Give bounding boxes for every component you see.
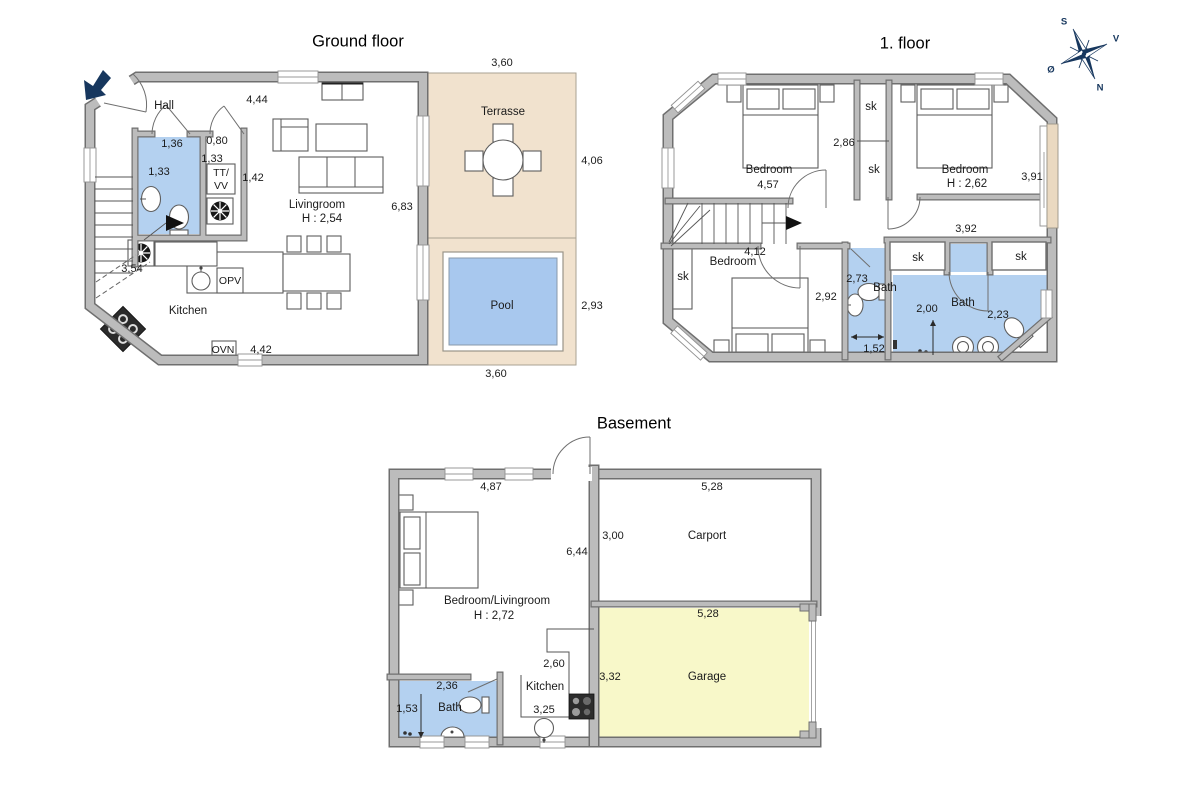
stove-icon bbox=[569, 694, 594, 719]
kitchen-sink-icon bbox=[535, 719, 554, 738]
first-floor-stairs bbox=[669, 203, 802, 246]
pool-shape bbox=[443, 252, 563, 351]
basement-kitchen bbox=[521, 629, 594, 743]
bath-toilet-icon bbox=[459, 697, 489, 713]
kitchen-sink-icon bbox=[192, 272, 210, 290]
compass-rose-icon bbox=[1061, 29, 1107, 79]
floorplan-graphics bbox=[0, 0, 1200, 800]
vent-icon bbox=[211, 202, 230, 221]
bath-toilet-icon bbox=[858, 284, 886, 301]
floorplan-page: Ground floor Hall 4,44 1,36 0,80 1,33 1,… bbox=[0, 0, 1200, 800]
